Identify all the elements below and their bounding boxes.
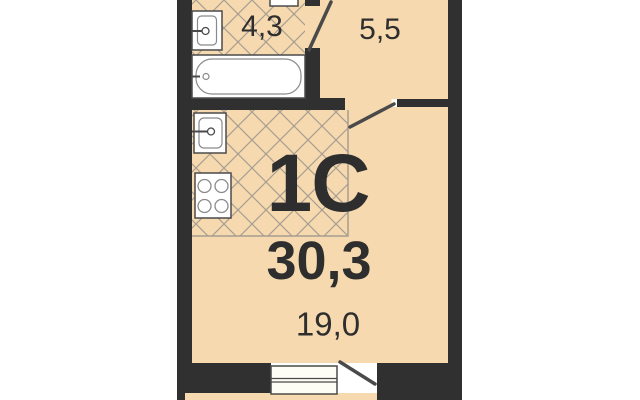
bottom-wall-right (377, 363, 462, 400)
kitchen-sink (192, 113, 226, 153)
balcony-door-leaf (340, 362, 375, 384)
right-wall (448, 0, 462, 400)
top-wall-stub (305, 0, 320, 6)
window (271, 366, 337, 394)
floor-plan: 4,3 5,5 1C 30,3 19,0 (0, 0, 640, 400)
hall-bottom-wall (397, 99, 448, 107)
plan-code-label: 1C (267, 143, 370, 225)
living-room-area-label: 19,0 (296, 308, 360, 341)
stove-icon (195, 173, 231, 218)
bathroom-kitchen-wall (177, 98, 345, 110)
bathtub (192, 55, 305, 98)
top-fixture (270, 0, 298, 6)
bottom-wall-left (177, 363, 271, 393)
total-area-label: 30,3 (266, 234, 371, 288)
hallway-area-label: 5,5 (359, 15, 401, 45)
washbasin (192, 11, 222, 50)
left-wall-foot (177, 393, 185, 400)
left-wall (177, 0, 192, 393)
bathroom-area-label: 4,3 (241, 12, 283, 42)
